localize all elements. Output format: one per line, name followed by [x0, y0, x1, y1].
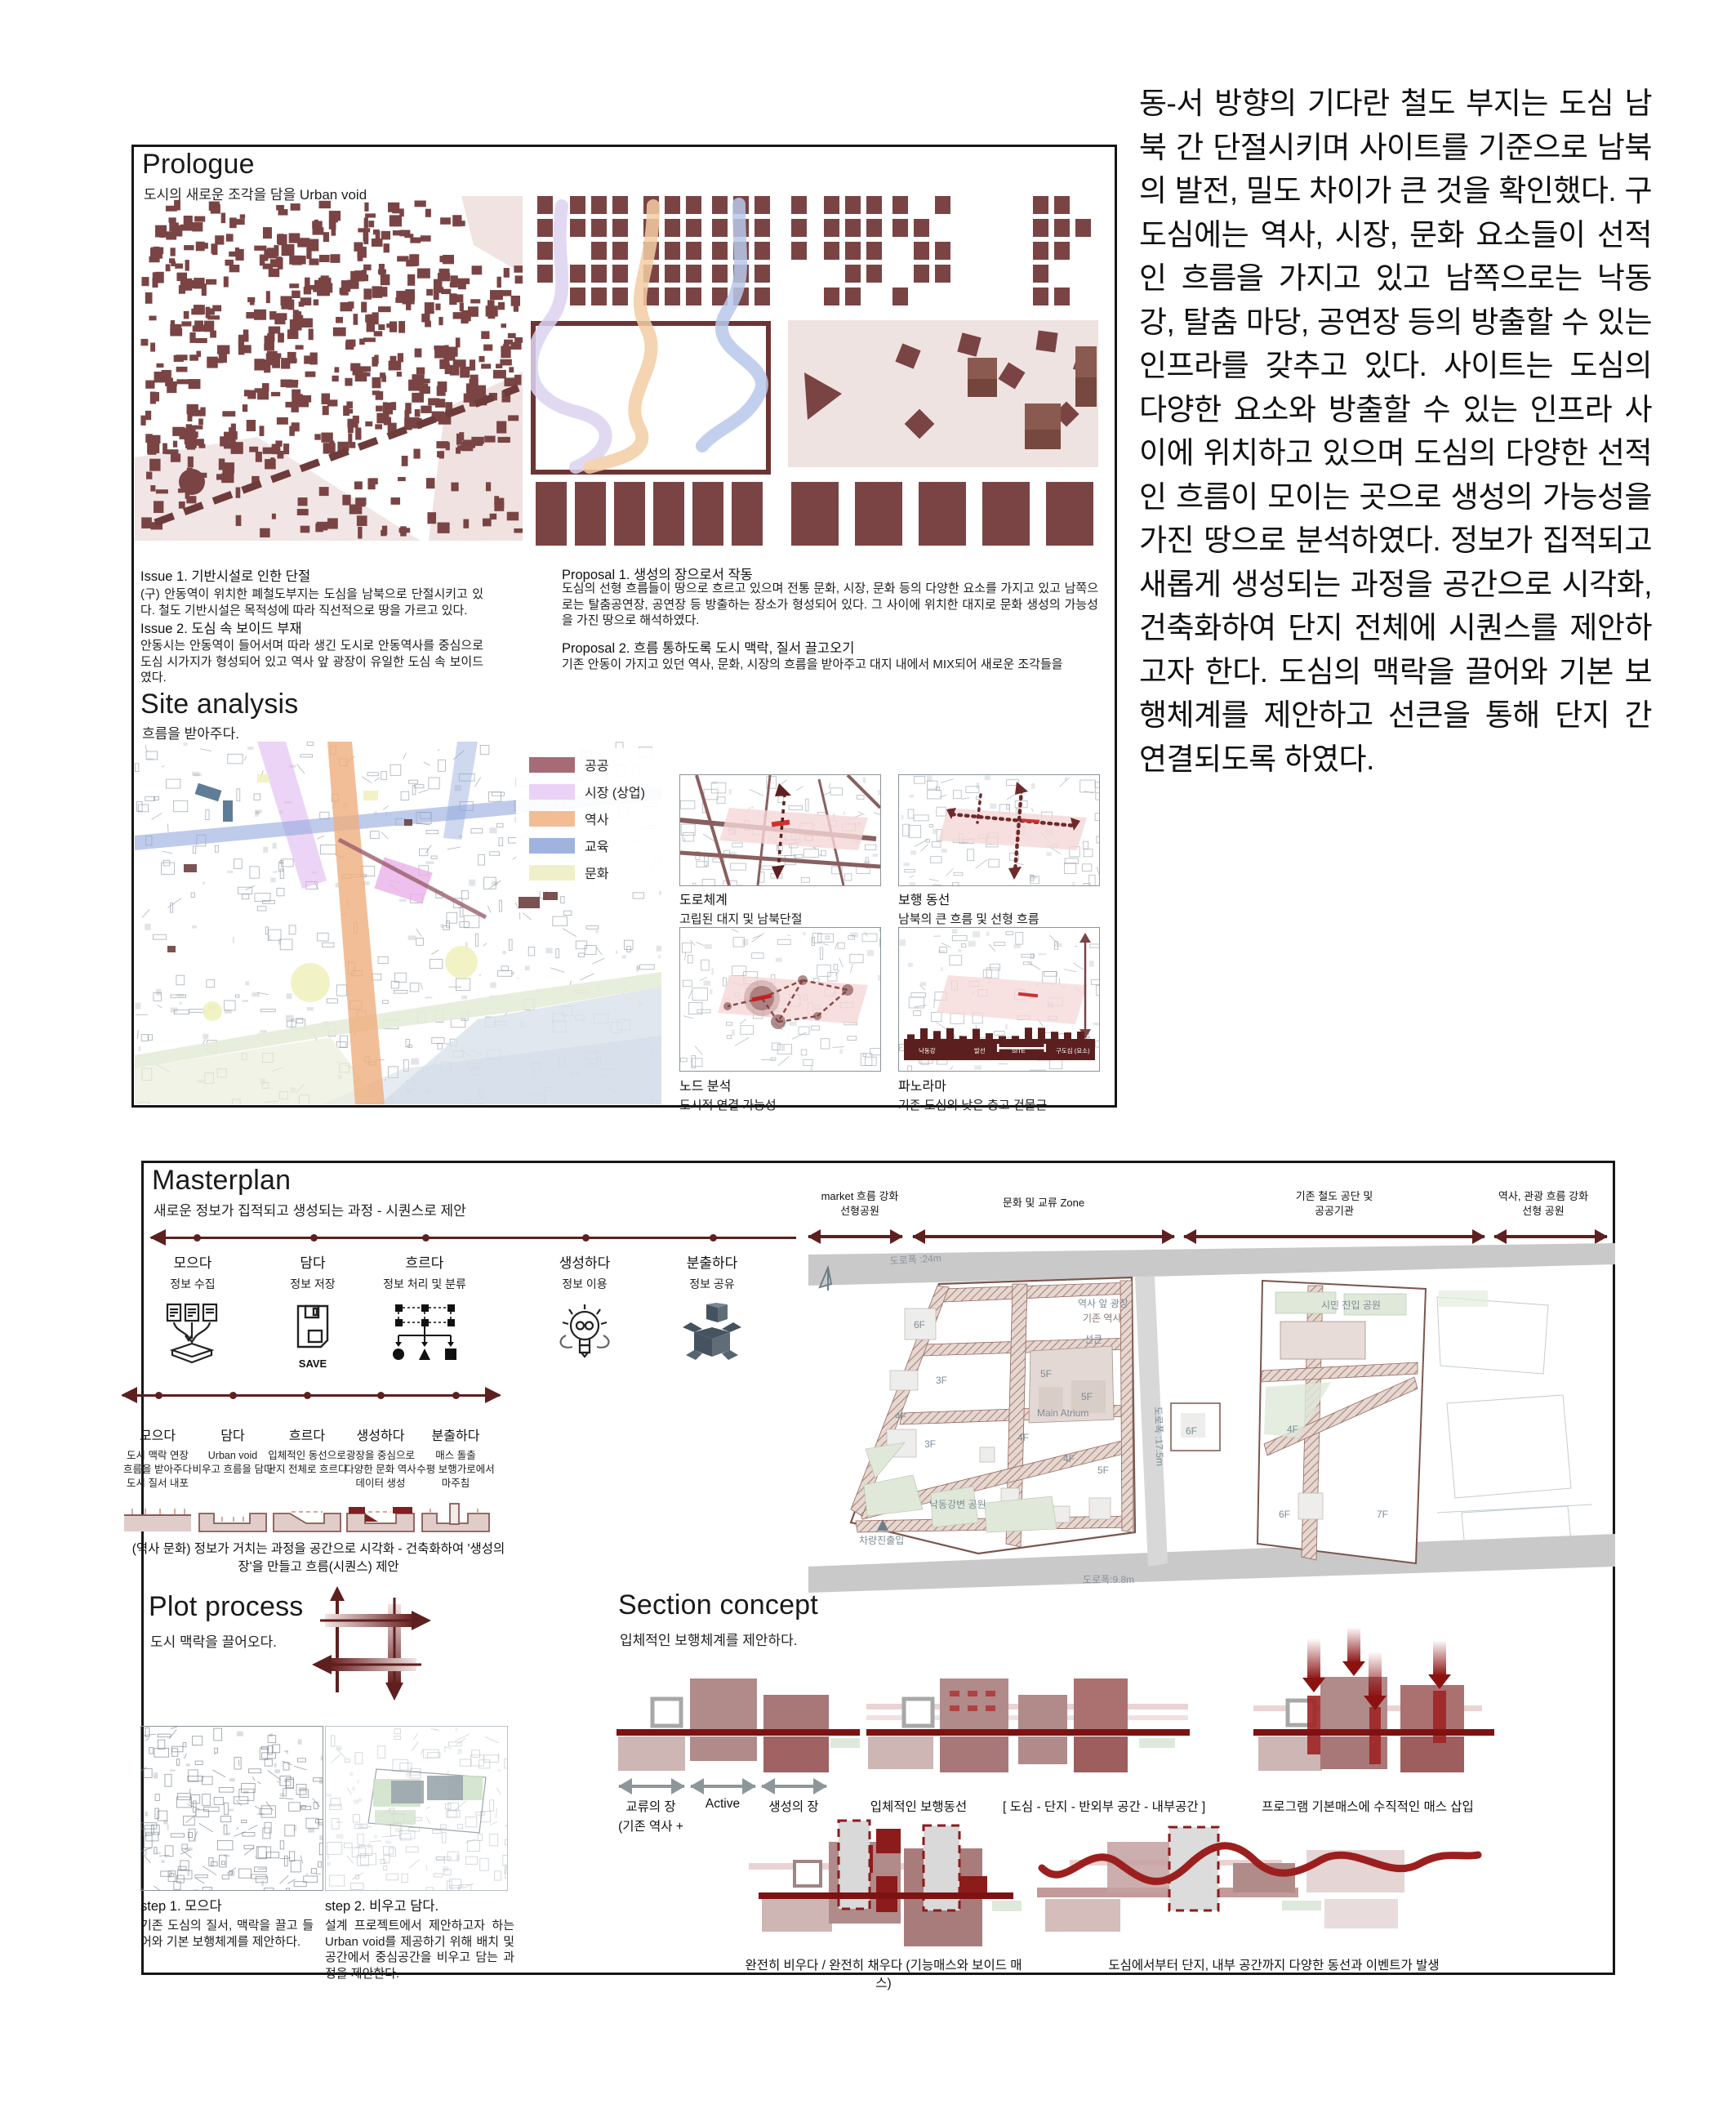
- share-box-icon: [651, 1303, 773, 1367]
- map3-caption: 도시적 연결 가능성: [679, 1096, 777, 1113]
- floor-label: 5F: [1081, 1391, 1093, 1402]
- documents-collect-icon: [131, 1303, 254, 1369]
- legend-item: 공공: [529, 755, 673, 774]
- map1-caption: 고립된 대지 및 남북단절: [679, 910, 803, 927]
- zone-label-rail: 기존 철도 공단 및 공공기관: [1261, 1189, 1408, 1218]
- map3-title: 노드 분석: [679, 1075, 731, 1094]
- panorama-label: 낙동강: [919, 1046, 936, 1054]
- river-park-label: 낙동강변 공원: [929, 1499, 986, 1510]
- legend-item: 문화: [529, 863, 673, 882]
- section-arrow: [691, 1785, 755, 1788]
- plot-map-step2: [325, 1726, 508, 1891]
- node-analysis-map: [679, 927, 881, 1072]
- citizen-park-label: 시민 진입 공원: [1321, 1300, 1381, 1311]
- issue2-body: 안동시는 안동역이 들어서며 따라 생긴 도시로 안동역사를 중심으로 도심 시…: [140, 638, 483, 686]
- map2-caption: 남북의 큰 흐름 및 선형 흐름: [898, 910, 1039, 927]
- floor-label: 4F: [895, 1411, 906, 1422]
- figure-ground-map: [135, 196, 523, 541]
- sequence-step-generate: 생성하다 정보 이용: [523, 1251, 646, 1369]
- plaza-label: 역사 앞 광장: [1078, 1298, 1128, 1309]
- space-step-generate: 생성하다 광장을 중심으로 다양한 문화 역사 데이터 생성: [338, 1424, 423, 1537]
- space-step-store: 담다 Urban void 비우고 흐름을 담다: [190, 1424, 275, 1537]
- panorama-label: 구도심 (요소): [1056, 1046, 1090, 1054]
- floor-label: 4F: [1287, 1424, 1298, 1435]
- vehicle-access-label: 차량진출입: [859, 1535, 904, 1546]
- section-arrow: [619, 1785, 684, 1788]
- map1-title: 도로체계: [679, 889, 728, 908]
- road-width-label: 도로폭 :17.5m: [1152, 1406, 1166, 1467]
- station-label: 기존 역사: [1083, 1313, 1122, 1324]
- zone-arrow: [913, 1235, 1174, 1238]
- step2-title: step 2. 비우고 담다.: [325, 1895, 438, 1915]
- section-thumb-emit: [421, 1502, 491, 1533]
- masterplan-map: 6F 역사 앞 광장 기존 역사 선큰 3F 5F 5F Main Atrium…: [808, 1243, 1615, 1593]
- floor-label: 4F: [1017, 1432, 1029, 1443]
- legend-swatch: [529, 811, 575, 827]
- space-step-emit: 분출하다 매스 돌출 수평 보행가로에서 마주침: [413, 1424, 498, 1537]
- masterplan-title: Masterplan: [152, 1165, 291, 1197]
- issue1-body: (구) 안동역이 위치한 폐철도부지는 도심을 남북으로 단절시키고 있다. 철…: [140, 586, 483, 618]
- floor-label: 6F: [1186, 1425, 1197, 1437]
- sequence-step-store: 담다 정보 저장 SAVE: [251, 1251, 374, 1370]
- masterplan-subtitle: 새로운 정보가 집적되고 생성되는 과정 - 시퀀스로 제안: [154, 1199, 466, 1219]
- flow-classify-icon: [363, 1303, 486, 1366]
- legend-swatch: [529, 865, 575, 880]
- section-thumb-store: [198, 1502, 268, 1533]
- proposal1-body: 도심의 선형 흐름들이 땅으로 흐르고 있으며 전통 문화, 시장, 문화 등의…: [562, 581, 1098, 629]
- section-thumb-collect: [122, 1502, 193, 1533]
- floor-label: 5F: [1097, 1464, 1109, 1476]
- floor-label: 4F: [1063, 1453, 1075, 1464]
- legend-swatch: [529, 757, 575, 773]
- zone-arrow: [1184, 1235, 1485, 1238]
- section-arrow: [762, 1785, 826, 1788]
- pedestrian-flow-map: [898, 774, 1100, 886]
- issue2-title: Issue 2. 도심 속 보이드 부재: [140, 617, 302, 637]
- map4-title: 파노라마: [898, 1075, 946, 1094]
- floor-label: 6F: [1279, 1509, 1290, 1520]
- issue1-title: Issue 1. 기반시설로 인한 단절: [140, 565, 310, 585]
- label-exchange-sub: (기존 역사 +: [602, 1817, 700, 1834]
- zone-label-station: 역사, 관광 흐름 강화 선형 공원: [1470, 1189, 1617, 1218]
- proposal2-body: 기존 안동이 가지고 있던 역사, 문화, 시장의 흐름을 받아주고 대지 내에…: [562, 657, 1098, 673]
- proposal1-diagram: [531, 194, 776, 547]
- sequence-arrow-1: [151, 1237, 796, 1239]
- road-width-label: 도로폭:9.8m: [1083, 1574, 1134, 1585]
- grid-flow-diagram: [310, 1586, 433, 1710]
- section-concept-title: Section concept: [618, 1589, 818, 1621]
- floor-label: 3F: [924, 1438, 936, 1450]
- legend-swatch: [529, 784, 575, 800]
- step2-body: 설계 프로젝트에서 제안하고자 하는 Urban void를 제공하기 위해 배…: [325, 1918, 514, 1982]
- panorama-map: 낙동강 발선 SITE 구도심 (요소): [898, 927, 1100, 1072]
- label-generation: 생성의 장: [745, 1797, 843, 1815]
- void-fill-diagram: [747, 1817, 1025, 1952]
- intro-paragraph: 동-서 방향의 기다란 철도 부지는 도심 남북 간 단절시키며 사이트를 기준…: [1139, 82, 1652, 781]
- section-thumb-generate: [345, 1502, 416, 1533]
- sequence-arrow-2: [122, 1394, 500, 1397]
- map4-caption: 기존 도심의 낮은 층고 건물군: [898, 1096, 1047, 1113]
- step1-title: step 1. 모으다: [140, 1895, 222, 1915]
- site-analysis-legend: 공공 시장 (상업) 역사 교육 문화: [516, 748, 673, 891]
- floor-label: 6F: [914, 1319, 925, 1331]
- caption-flow-event: 도심에서부터 단지, 내부 공간까지 다양한 동선과 이벤트가 발생: [1045, 1955, 1502, 1973]
- atrium-label: Main Atrium: [1037, 1407, 1088, 1419]
- flow-event-diagram: [1037, 1817, 1494, 1952]
- map2-title: 보행 동선: [898, 889, 950, 908]
- floor-label: 5F: [1040, 1368, 1052, 1380]
- legend-swatch: [529, 838, 575, 854]
- label-pedestrian: 입체적인 보행동선: [841, 1797, 996, 1815]
- plot-map-step1: [140, 1726, 323, 1891]
- proposal2-diagram: [788, 194, 1098, 547]
- road-system-map: [679, 774, 881, 886]
- proposal2-title: Proposal 2. 흐름 통하도록 도시 맥락, 질서 끌고오기: [562, 637, 854, 657]
- sequence-caption: (역사 문화) 정보가 거치는 과정을 공간으로 시각화 - 건축화하여 '생성…: [122, 1539, 514, 1575]
- site-analysis-title: Site analysis: [140, 689, 298, 720]
- space-step-collect: 모으다 도시 맥락 연장 흐름을 받아주다 도시 질서 내포: [115, 1424, 200, 1537]
- zone-label-market: market 흐름 강화 선형공원: [799, 1189, 921, 1218]
- floppy-save-icon: SAVE: [251, 1303, 374, 1370]
- sequence-step-flow: 흐르다 정보 처리 및 분류: [363, 1251, 486, 1366]
- plot-process-subtitle: 도시 맥락을 끌어오다.: [150, 1630, 277, 1651]
- zone-arrow: [1494, 1235, 1607, 1238]
- section-thumb-flow: [272, 1502, 342, 1533]
- zone-label-culture: 문화 및 교류 Zone: [970, 1196, 1117, 1210]
- label-hierarchy: [ 도심 - 단지 - 반외부 공간 - 내부공간 ]: [1003, 1797, 1248, 1815]
- save-label: SAVE: [251, 1357, 374, 1370]
- sunken-label: 선큰: [1084, 1334, 1102, 1345]
- sequence-step-emit: 분출하다 정보 공유: [651, 1251, 773, 1367]
- lightbulb-icon: [523, 1303, 646, 1369]
- panorama-label: 발선: [974, 1047, 986, 1054]
- sequence-step-collect: 모으다 정보 수집: [131, 1251, 254, 1369]
- caption-void-fill: 완전히 비우다 / 완전히 채우다 (기능매스와 보이드 매스): [745, 1955, 1022, 1991]
- step1-body: 기존 도심의 질서, 맥락을 끌고 들어와 기본 보행체계를 제안하다.: [140, 1918, 314, 1950]
- panorama-label: SITE: [1012, 1047, 1026, 1054]
- legend-item: 역사: [529, 809, 673, 828]
- zone-arrow: [808, 1235, 902, 1238]
- floor-label: 7F: [1377, 1509, 1388, 1520]
- floor-label: 3F: [936, 1375, 947, 1386]
- legend-item: 시장 (상업): [529, 782, 673, 801]
- label-vertical-mass: 프로그램 기본매스에 수직적인 매스 삽입: [1233, 1797, 1502, 1815]
- site-analysis-subtitle: 흐름을 받아주다.: [142, 722, 239, 742]
- prologue-title: Prologue: [142, 149, 255, 181]
- section-concept-diagrams: [617, 1627, 1617, 1772]
- space-step-flow: 흐르다 입체적인 동선으로 단지 전체로 흐르다: [265, 1424, 349, 1537]
- presentation-board: Prologue 도시의 새로운 조각을 담을 Urban void: [0, 0, 1736, 2122]
- legend-item: 교육: [529, 836, 673, 855]
- plot-process-title: Plot process: [149, 1591, 303, 1623]
